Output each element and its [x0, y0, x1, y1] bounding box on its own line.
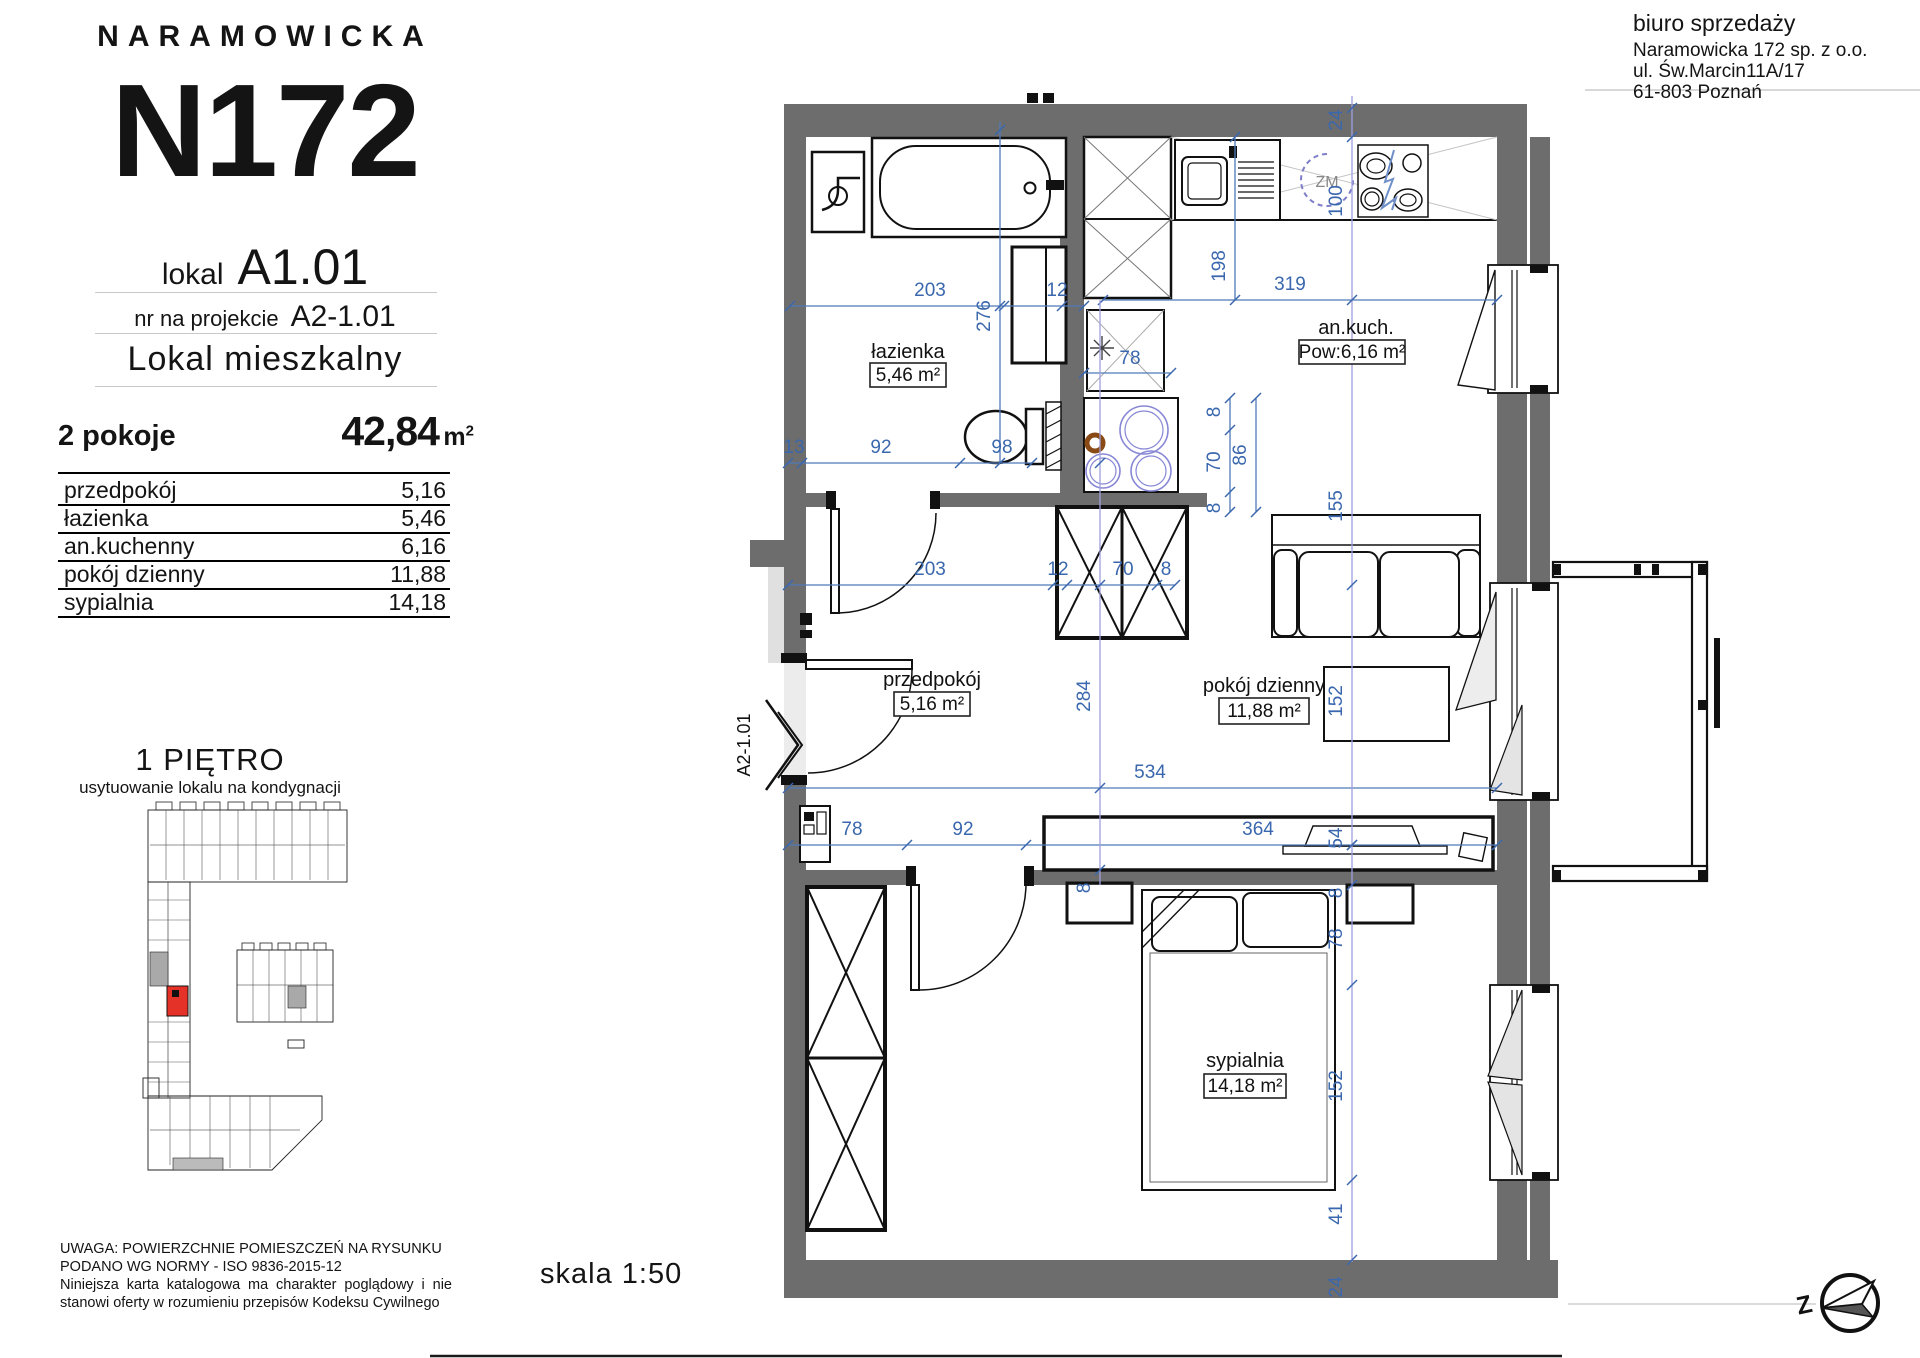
- area-unit: m2: [443, 423, 474, 451]
- balcony-icon: [1553, 562, 1720, 881]
- dimension-label: 12: [1047, 559, 1068, 580]
- room-label: pokój dzienny: [1203, 675, 1325, 697]
- room-label: przedpokój: [883, 669, 981, 691]
- room-area-label: 5,16 m²: [900, 694, 964, 715]
- scale-label: skala 1:50: [540, 1258, 682, 1291]
- dimension-label: 276: [974, 300, 995, 332]
- bed-icon: [1142, 890, 1335, 1190]
- cooktop-icon: [1358, 145, 1428, 217]
- dimension-label: 24: [1326, 109, 1347, 131]
- kitchen-window-icon: [1458, 265, 1558, 393]
- dimension-label: 86: [1230, 444, 1251, 465]
- dimension-label: 54: [1326, 827, 1347, 849]
- dimension-label: 78: [841, 819, 862, 840]
- bathtub-icon: [872, 138, 1066, 237]
- unit-type: Lokal mieszkalny: [88, 340, 442, 379]
- room-name: pokój dzienny: [64, 562, 205, 587]
- divider: [95, 292, 437, 293]
- dimension-label: 203: [914, 280, 946, 301]
- dimension-label: 152: [1326, 1070, 1347, 1102]
- dimension-label: 8: [1204, 503, 1225, 514]
- dimension-label: 41: [1326, 1203, 1347, 1224]
- dimension-label: 100: [1326, 185, 1347, 217]
- disclaimer-line: PODANO WG NORMY - ISO 9836-2015-12: [60, 1258, 452, 1276]
- room-name: łazienka: [64, 506, 148, 531]
- dimension-label: 8: [1074, 883, 1095, 894]
- dimension-label: 284: [1074, 680, 1095, 712]
- disclaimer: UWAGA: POWIERZCHNIE POMIESZCZEŃ NA RYSUN…: [60, 1240, 452, 1312]
- dimension-label: 155: [1326, 490, 1347, 522]
- bathroom-fixtures: [812, 138, 1066, 470]
- dimension-label: 198: [1209, 250, 1230, 282]
- room-area-label: 5,46 m²: [876, 365, 940, 386]
- seller-city: 61-803 Poznań: [1633, 82, 1920, 103]
- disclaimer-line: UWAGA: POWIERZCHNIE POMIESZCZEŃ NA RYSUN…: [60, 1240, 452, 1258]
- room-label: an.kuch.: [1318, 317, 1394, 339]
- floor-title: 1 PIĘTRO: [60, 742, 360, 778]
- dimension-label: 8: [1161, 559, 1172, 580]
- table-row: pokój dzienny11,88: [58, 562, 450, 590]
- room-label: sypialnia: [1206, 1050, 1285, 1072]
- compass-letter: Z: [1794, 1290, 1815, 1321]
- dining-set-icon: [1084, 398, 1178, 492]
- dimension-label: 70: [1204, 451, 1225, 472]
- compass-icon: Z: [1568, 1275, 1878, 1331]
- seller-info: biuro sprzedaży Naramowicka 172 sp. z o.…: [1633, 10, 1920, 103]
- radiator-icon: [1046, 402, 1061, 470]
- seller-title: biuro sprzedaży: [1633, 10, 1920, 37]
- room-label: łazienka: [871, 341, 945, 363]
- room-area-label: Pow:6,16 m²: [1299, 342, 1406, 363]
- building-key-plan: [143, 802, 347, 1170]
- doors: [806, 509, 1026, 990]
- project-number: A2-1.01: [291, 300, 396, 334]
- table-row: sypialnia14,18: [58, 590, 450, 618]
- dimension-label: 78: [1119, 348, 1140, 369]
- dimension-label: 152: [1326, 685, 1347, 717]
- room-area: 5,16: [401, 478, 446, 503]
- dimension-label: 319: [1274, 274, 1306, 295]
- divider: [95, 333, 437, 334]
- electrical-panel-icon: [800, 806, 830, 862]
- table-row: przedpokój5,16: [58, 478, 450, 506]
- room-area: 6,16: [401, 534, 446, 559]
- dimension-label: 12: [1046, 280, 1067, 301]
- seller-street: ul. Św.Marcin11A/17: [1633, 61, 1920, 82]
- dimension-label: 364: [1242, 819, 1274, 840]
- dimension-label: 70: [1112, 559, 1133, 580]
- bedroom-window-icon: [1488, 985, 1558, 1180]
- room-name: przedpokój: [64, 478, 177, 503]
- project-number-label: nr na projekcie: [134, 306, 278, 332]
- room-name: sypialnia: [64, 590, 154, 615]
- sofa-icon: [1272, 515, 1480, 637]
- rooms-area-table: przedpokój5,16łazienka5,46an.kuchenny6,1…: [58, 472, 450, 618]
- table-row: an.kuchenny6,16: [58, 534, 450, 562]
- dimension-label: 24: [1326, 1276, 1347, 1298]
- rooms-count: 2 pokoje: [58, 420, 176, 453]
- table-row: łazienka5,46: [58, 506, 450, 534]
- seller-company: Naramowicka 172 sp. z o.o.: [1633, 40, 1920, 61]
- floor-subtitle: usytuowanie lokalu na kondygnacji: [60, 778, 360, 798]
- dimension-label: 78: [1326, 928, 1347, 949]
- room-area: 14,18: [388, 590, 446, 615]
- room-area-label: 14,18 m²: [1208, 1076, 1283, 1097]
- lokal-number: A1.01: [238, 238, 369, 296]
- project-logo: N172: [88, 58, 442, 203]
- project-number-row: nr na projekcie A2-1.01: [88, 300, 442, 334]
- dimension-label: 13: [783, 437, 804, 458]
- divider: [95, 386, 437, 387]
- dimension-label: 92: [870, 437, 891, 458]
- dimension-label: 98: [991, 437, 1012, 458]
- dimension-label: 203: [914, 559, 946, 580]
- washbasin-cabinet-icon: [1012, 247, 1066, 363]
- entrance-unit-label: A2-1.01: [734, 713, 754, 776]
- room-name: an.kuchenny: [64, 534, 194, 559]
- lokal-row: lokal A1.01: [88, 238, 442, 296]
- kitchen-tall-cabinet-icon: [1084, 137, 1171, 298]
- room-area: 5,46: [401, 506, 446, 531]
- nightstand-icon: [1347, 885, 1413, 923]
- total-area: 42,84: [341, 408, 439, 454]
- kitchen-fixtures: [1084, 137, 1497, 492]
- estate-name: NARAMOWICKA: [88, 20, 442, 54]
- dimension-label: 8: [1326, 888, 1347, 899]
- dimension-label: 534: [1134, 762, 1166, 783]
- dimension-label: 92: [952, 819, 973, 840]
- lokal-label: lokal: [162, 258, 224, 292]
- area-summary-row: 2 pokoje 42,84 m2: [58, 408, 474, 455]
- room-area-label: 11,88 m²: [1227, 701, 1301, 722]
- catalog-card-page: A2-1.01 ZM 20312319139298782031270853478…: [0, 0, 1920, 1358]
- dimension-label: 8: [1204, 407, 1225, 418]
- disclaimer-body: Niniejsza karta katalogowa ma charakter …: [60, 1276, 452, 1312]
- room-area: 11,88: [390, 562, 446, 587]
